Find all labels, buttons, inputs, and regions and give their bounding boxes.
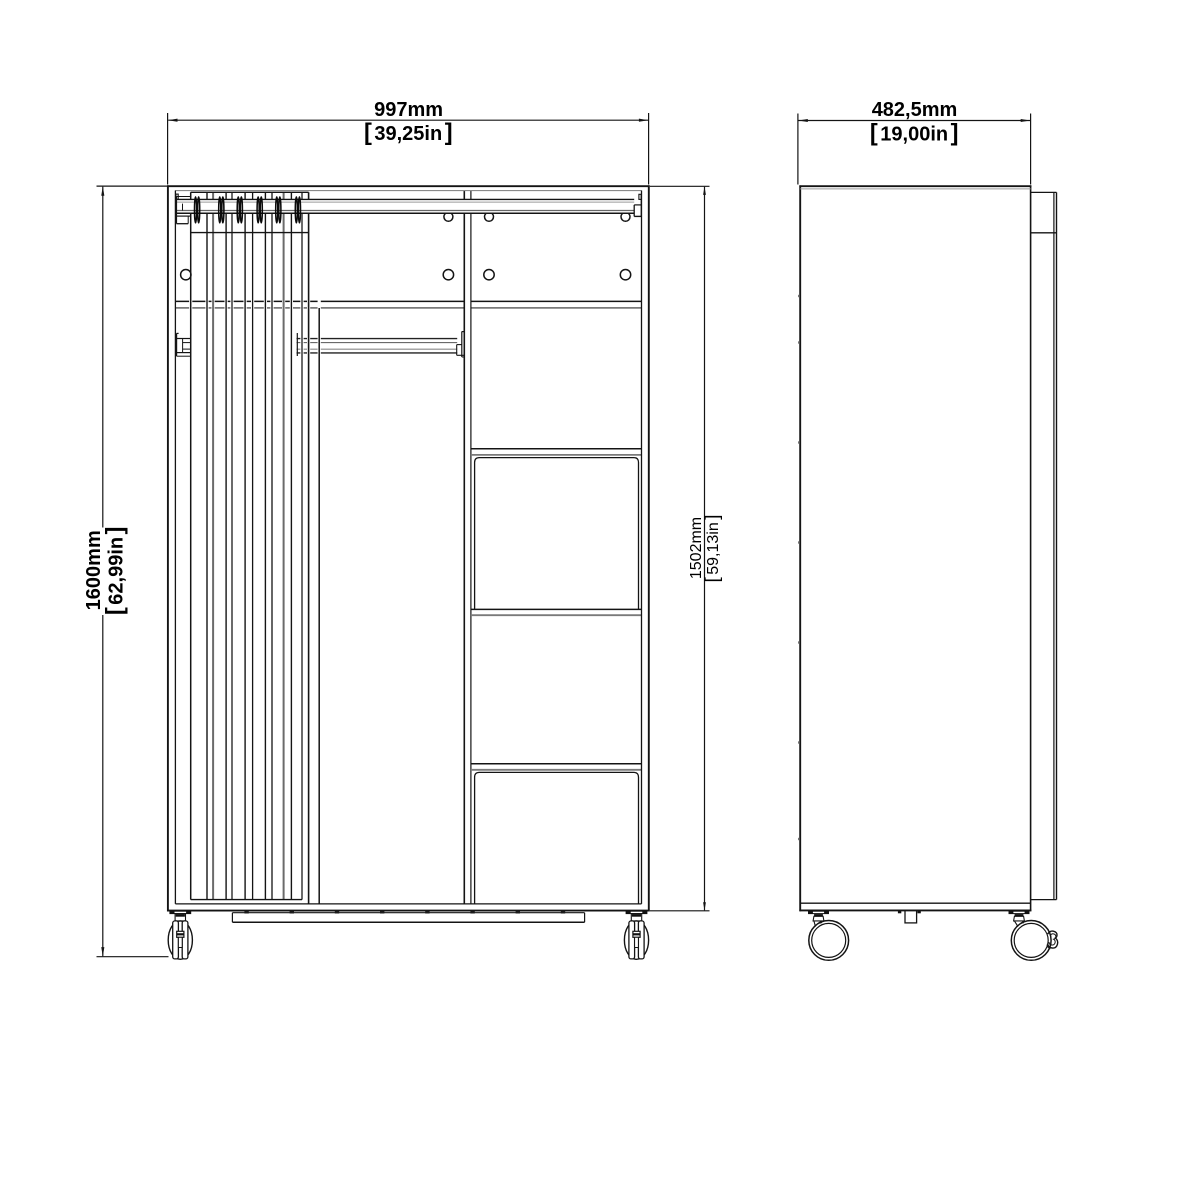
svg-text:997mm: 997mm (374, 99, 443, 121)
svg-text:[62,99in]: [62,99in] (103, 527, 129, 616)
svg-text:1600mm: 1600mm (83, 530, 105, 610)
svg-text:1502mm: 1502mm (688, 517, 705, 579)
svg-text:482,5mm: 482,5mm (872, 99, 958, 121)
svg-text:[19,00in]: [19,00in] (870, 121, 959, 147)
svg-text:[39,25in]: [39,25in] (364, 120, 453, 146)
svg-text:[59,13in]: [59,13in] (702, 515, 723, 583)
